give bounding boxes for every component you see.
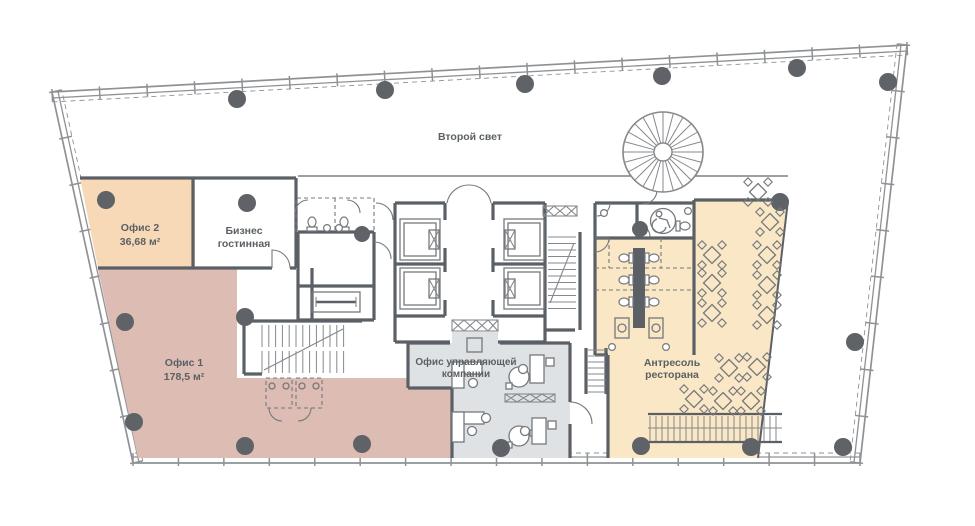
- toilet-icon: [645, 297, 659, 307]
- service-lift: [312, 292, 360, 312]
- label-management-line2: компании: [442, 369, 490, 380]
- structural-column: [492, 439, 510, 457]
- label-office2-area: 36,68 м²: [120, 236, 161, 248]
- door-arc: [374, 242, 391, 259]
- toilet-bowl: [649, 276, 659, 284]
- spiral-center: [654, 143, 672, 161]
- label-management-line1: Офис управляющей: [415, 356, 516, 368]
- label-office1-area: 178,5 м²: [164, 371, 205, 383]
- mullion-tick: [432, 68, 433, 81]
- structural-column: [354, 226, 370, 242]
- structural-column: [228, 90, 246, 108]
- structural-column: [97, 191, 115, 209]
- floor-plan: Второй свет Офис 2 36,68 м² Бизнес гости…: [0, 0, 975, 526]
- toilet-bowl: [619, 298, 629, 306]
- elevator: [400, 219, 440, 260]
- toilet-bowl: [619, 254, 629, 262]
- mullion-tick: [855, 415, 868, 416]
- structural-column: [742, 438, 760, 456]
- wc-core-wall: [633, 248, 645, 328]
- structural-column: [236, 308, 254, 326]
- structural-column: [834, 438, 852, 456]
- mullion-tick: [194, 81, 195, 94]
- mullion-tick: [859, 45, 860, 58]
- structural-column: [879, 73, 897, 91]
- spiral-staircase: [623, 112, 703, 192]
- mullion-tick: [622, 58, 623, 71]
- toilet-icon: [645, 253, 659, 263]
- label-office2-name: Офис 2: [121, 222, 160, 234]
- mullion-tick: [887, 137, 900, 138]
- sink-icon: [324, 225, 331, 232]
- toilet-icon: [676, 221, 690, 231]
- structural-column: [846, 333, 864, 351]
- mullion-tick: [289, 76, 290, 89]
- door-arc: [570, 402, 592, 424]
- label-mezzanine-line1: Антресоль: [644, 357, 701, 369]
- sink-icon: [663, 344, 670, 351]
- label-lounge-line2: гостинная: [218, 238, 271, 250]
- structural-column: [238, 194, 256, 212]
- mullion-tick: [892, 90, 905, 91]
- structural-column: [516, 75, 534, 93]
- mullion-tick: [764, 50, 765, 63]
- envelope-line: [860, 45, 907, 463]
- vestibule-fill: [452, 332, 498, 359]
- mullion-tick: [527, 63, 528, 76]
- table-top: [750, 184, 767, 201]
- mullion-tick: [479, 66, 480, 79]
- structural-column: [353, 435, 371, 453]
- mullion-tick: [876, 230, 889, 231]
- toilet-bowl: [649, 298, 659, 306]
- sink-icon: [685, 208, 692, 215]
- door-arc: [347, 200, 360, 213]
- structural-column: [125, 413, 143, 431]
- toilet-icon: [307, 217, 317, 231]
- mullion-tick: [147, 84, 148, 97]
- toilet-icon: [619, 297, 633, 307]
- chair: [764, 178, 772, 186]
- envelope-edge: [850, 44, 910, 463]
- mullion-tick: [812, 47, 813, 60]
- structural-column: [236, 437, 254, 455]
- mullion-tick: [866, 323, 879, 324]
- mullion-tick: [717, 52, 718, 65]
- door-arc-double: [447, 185, 491, 203]
- sink-icon: [336, 225, 343, 232]
- mullion-tick: [669, 55, 670, 68]
- toilet-icon: [619, 275, 633, 285]
- wheelchair-icon: [651, 209, 676, 234]
- structural-column: [376, 81, 394, 99]
- elevator: [504, 268, 544, 309]
- elevator: [504, 219, 544, 260]
- toilet-bowl: [680, 222, 690, 230]
- mullion-tick: [99, 86, 100, 99]
- toilet-icon: [645, 275, 659, 285]
- room-fills: [80, 178, 788, 458]
- envelope-line: [854, 44, 901, 462]
- toilet-tank: [307, 227, 317, 231]
- mullion-tick: [242, 79, 243, 92]
- structural-column: [632, 221, 648, 237]
- structural-column: [632, 437, 650, 455]
- mullion-tick: [337, 73, 338, 86]
- label-lounge-line1: Бизнес: [225, 225, 262, 237]
- door-arc: [272, 250, 290, 268]
- door-arc: [376, 203, 393, 220]
- mullion-tick: [881, 183, 894, 184]
- toilet-icon: [619, 253, 633, 263]
- mullion-tick: [574, 60, 575, 73]
- toilet-bowl: [649, 254, 659, 262]
- structural-column: [653, 67, 671, 85]
- toilet-bowl: [308, 217, 316, 227]
- elevator: [400, 268, 440, 309]
- toilet-bowl: [619, 276, 629, 284]
- label-mezzanine-line2: ресторана: [645, 369, 699, 381]
- mullion-tick: [861, 369, 874, 370]
- structural-column: [116, 313, 134, 331]
- sink-icon: [609, 344, 616, 351]
- chair: [744, 178, 752, 186]
- mullion-tick: [871, 276, 884, 277]
- label-second-light: Второй свет: [438, 131, 502, 143]
- staircase: [588, 350, 606, 392]
- structural-column: [788, 59, 806, 77]
- label-office1-name: Офис 1: [165, 357, 204, 369]
- envelope-edge: [52, 42, 908, 102]
- envelope-line: [850, 44, 897, 462]
- sink-icon: [601, 210, 608, 217]
